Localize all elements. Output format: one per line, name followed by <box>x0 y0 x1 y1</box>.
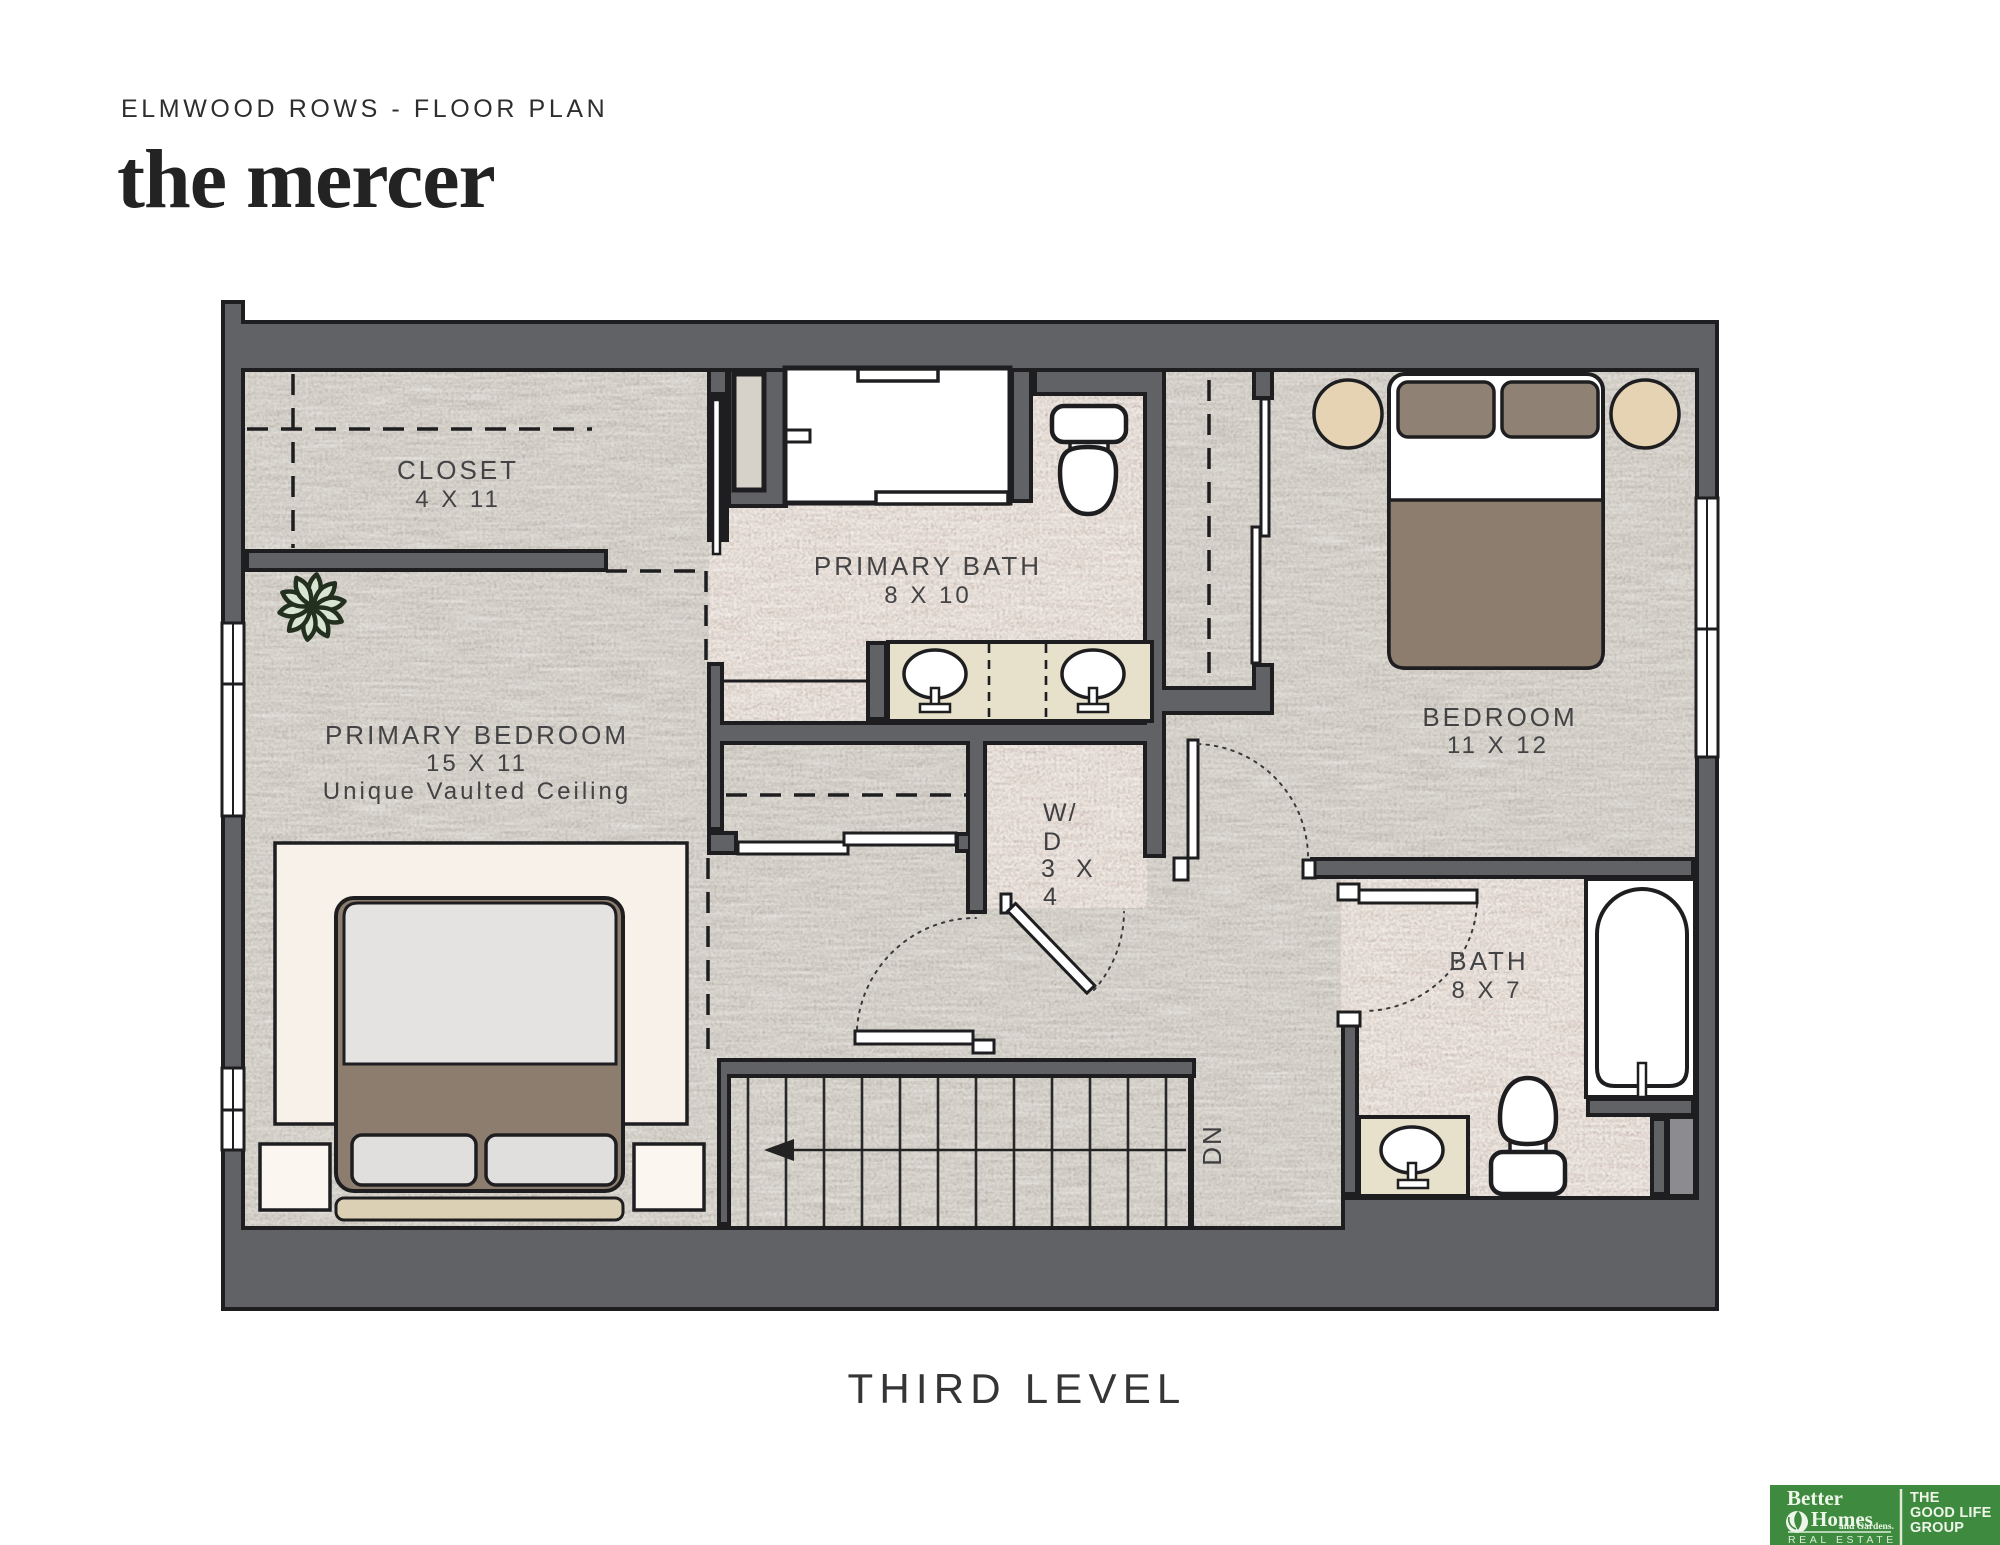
svg-text:PRIMARY BEDROOM: PRIMARY BEDROOM <box>325 720 629 750</box>
svg-text:8 X 7: 8 X 7 <box>1451 977 1522 1004</box>
svg-text:11 X 12: 11 X 12 <box>1447 732 1549 759</box>
svg-text:REAL ESTATE: REAL ESTATE <box>1788 1534 1897 1545</box>
svg-text:Unique Vaulted Ceiling: Unique Vaulted Ceiling <box>323 778 631 805</box>
svg-text:GOOD LIFE: GOOD LIFE <box>1910 1505 1992 1521</box>
svg-text:X: X <box>1076 855 1095 883</box>
svg-text:15 X 11: 15 X 11 <box>426 750 528 777</box>
svg-text:ELMWOOD ROWS - FLOOR PLAN: ELMWOOD ROWS - FLOOR PLAN <box>121 95 608 123</box>
svg-text:DN: DN <box>1197 1124 1227 1166</box>
svg-text:CLOSET: CLOSET <box>397 455 519 485</box>
svg-text:GROUP: GROUP <box>1910 1520 1964 1536</box>
svg-text:D: D <box>1043 828 1063 856</box>
svg-text:3: 3 <box>1041 855 1057 883</box>
svg-text:THIRD LEVEL: THIRD LEVEL <box>848 1365 1187 1412</box>
svg-text:the mercer: the mercer <box>117 133 495 226</box>
svg-text:PRIMARY BATH: PRIMARY BATH <box>814 551 1042 581</box>
svg-text:THE: THE <box>1910 1490 1940 1506</box>
svg-text:BEDROOM: BEDROOM <box>1422 702 1577 732</box>
svg-text:8 X 10: 8 X 10 <box>884 582 971 609</box>
svg-text:and Gardens.: and Gardens. <box>1839 1522 1894 1532</box>
svg-text:4 X 11: 4 X 11 <box>415 486 501 513</box>
svg-text:W/: W/ <box>1043 799 1078 827</box>
svg-text:4: 4 <box>1043 883 1059 911</box>
svg-text:BATH: BATH <box>1449 946 1528 976</box>
